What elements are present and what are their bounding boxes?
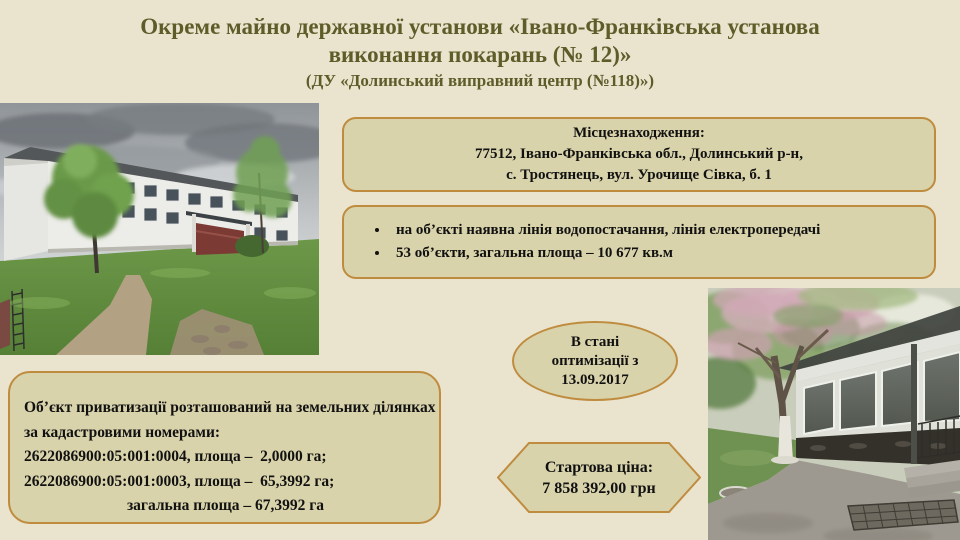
price-line-2: 7 858 392,00 грн (497, 478, 701, 499)
land-line-1: Об’єкт приватизації розташований на земе… (24, 396, 427, 421)
slide-title: Окреме майно державної установи «Івано-Ф… (0, 13, 960, 91)
land-line-4: 2622086900:05:001:0003, площа – 65,3992 … (24, 470, 427, 495)
status-line-2: оптимізації з (514, 352, 676, 371)
location-line-1: 77512, Івано-Франківська обл., Долинськи… (344, 144, 934, 165)
optimization-status-ellipse: В стані оптимізації з 13.09.2017 (512, 321, 678, 401)
land-line-5: загальна площа – 67,3992 га (24, 494, 427, 519)
feature-item-area: 53 об’єкти, загальна площа – 10 677 кв.м (390, 242, 916, 265)
left-building-photo (0, 103, 319, 355)
title-subtitle: (ДУ «Долинський виправний центр (№118)») (0, 70, 960, 91)
title-line-1: Окреме майно державної установи «Івано-Ф… (0, 13, 960, 41)
location-line-2: с. Тростянець, вул. Урочище Сівка, б. 1 (344, 165, 934, 186)
land-line-3: 2622086900:05:001:0004, площа – 2,0000 г… (24, 445, 427, 470)
features-list: на об’єкті наявна лінія водопостачання, … (358, 219, 916, 265)
location-box: Місцезнаходження: 77512, Івано-Франківсь… (342, 117, 936, 192)
feature-item-utilities: на об’єкті наявна лінія водопостачання, … (390, 219, 916, 242)
status-line-1: В стані (514, 333, 676, 352)
starting-price-text: Стартова ціна: 7 858 392,00 грн (497, 442, 701, 513)
title-line-2: виконання покарань (№ 12)» (0, 41, 960, 69)
location-heading: Місцезнаходження: (344, 123, 934, 144)
right-building-photo (708, 288, 960, 540)
slide: Окреме майно державної установи «Івано-Ф… (0, 0, 960, 540)
status-line-3: 13.09.2017 (514, 371, 676, 390)
price-line-1: Стартова ціна: (497, 457, 701, 478)
starting-price-hexagon: Стартова ціна: 7 858 392,00 грн (497, 442, 701, 513)
features-box: на об’єкті наявна лінія водопостачання, … (342, 205, 936, 279)
land-parcels-box: Об’єкт приватизації розташований на земе… (8, 371, 441, 524)
land-line-2: за кадастровими номерами: (24, 421, 427, 446)
